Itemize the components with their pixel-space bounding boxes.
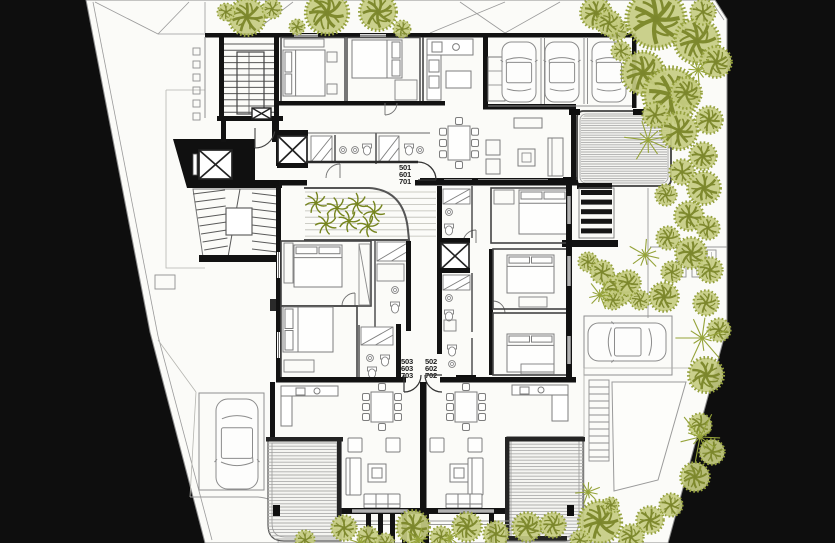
- svg-text:701: 701: [399, 177, 412, 186]
